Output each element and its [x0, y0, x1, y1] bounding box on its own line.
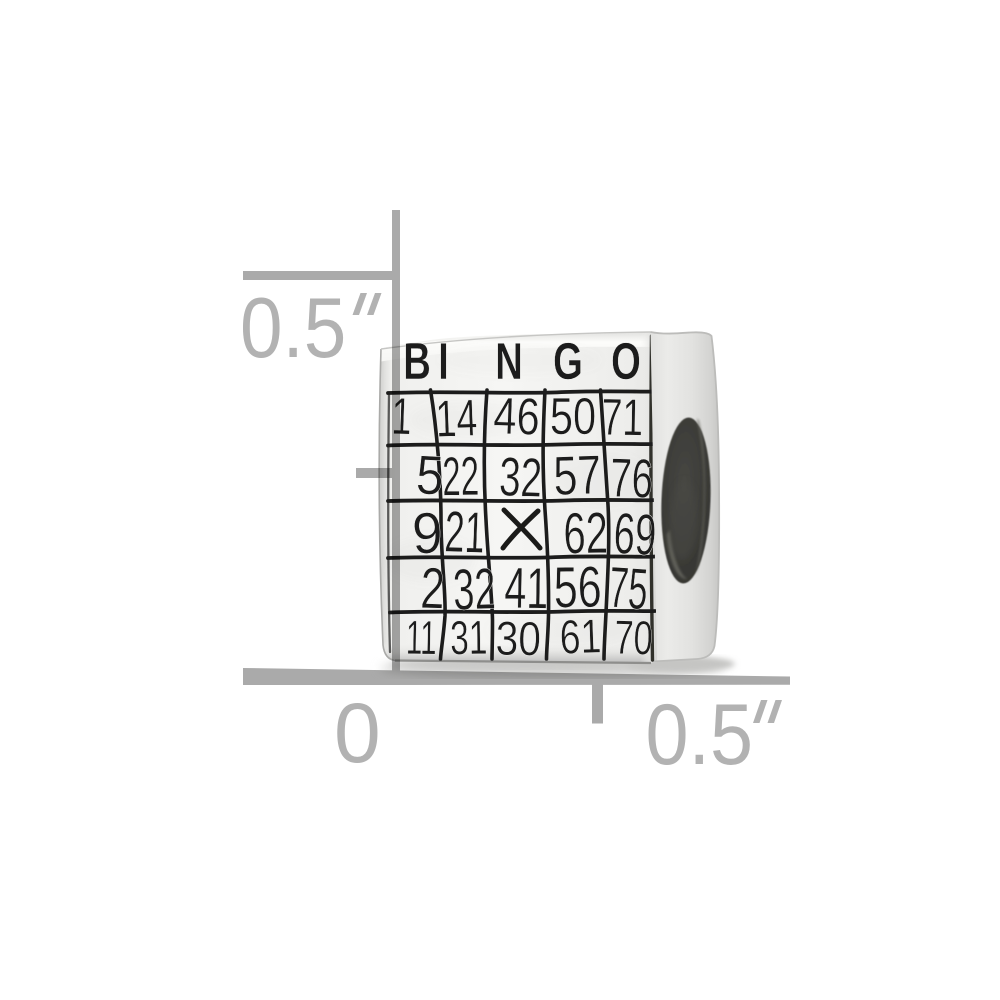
- svg-text:46: 46: [492, 386, 540, 446]
- svg-text:71: 71: [601, 388, 644, 447]
- svg-text:G: G: [553, 332, 583, 390]
- svg-text:5: 5: [415, 445, 446, 507]
- svg-text:14: 14: [435, 388, 479, 448]
- svg-text:31: 31: [450, 610, 488, 665]
- svg-text:57: 57: [552, 444, 602, 507]
- svg-text:22: 22: [442, 445, 480, 507]
- svg-text:N: N: [495, 332, 523, 390]
- svg-text:I: I: [438, 332, 449, 390]
- svg-text:50: 50: [550, 387, 596, 446]
- svg-text:41: 41: [504, 555, 549, 621]
- svg-text:76: 76: [609, 448, 654, 511]
- svg-text:32: 32: [498, 447, 543, 510]
- svg-text:21: 21: [444, 500, 486, 566]
- svg-text:0.5: 0.5: [240, 281, 346, 376]
- svg-text:61: 61: [559, 610, 602, 665]
- svg-text:O: O: [611, 332, 641, 390]
- svg-text:0.5: 0.5: [646, 687, 754, 783]
- svg-text:0: 0: [334, 686, 381, 780]
- svg-text:70: 70: [613, 610, 653, 665]
- svg-text:11: 11: [405, 612, 437, 665]
- svg-text:30: 30: [495, 613, 541, 667]
